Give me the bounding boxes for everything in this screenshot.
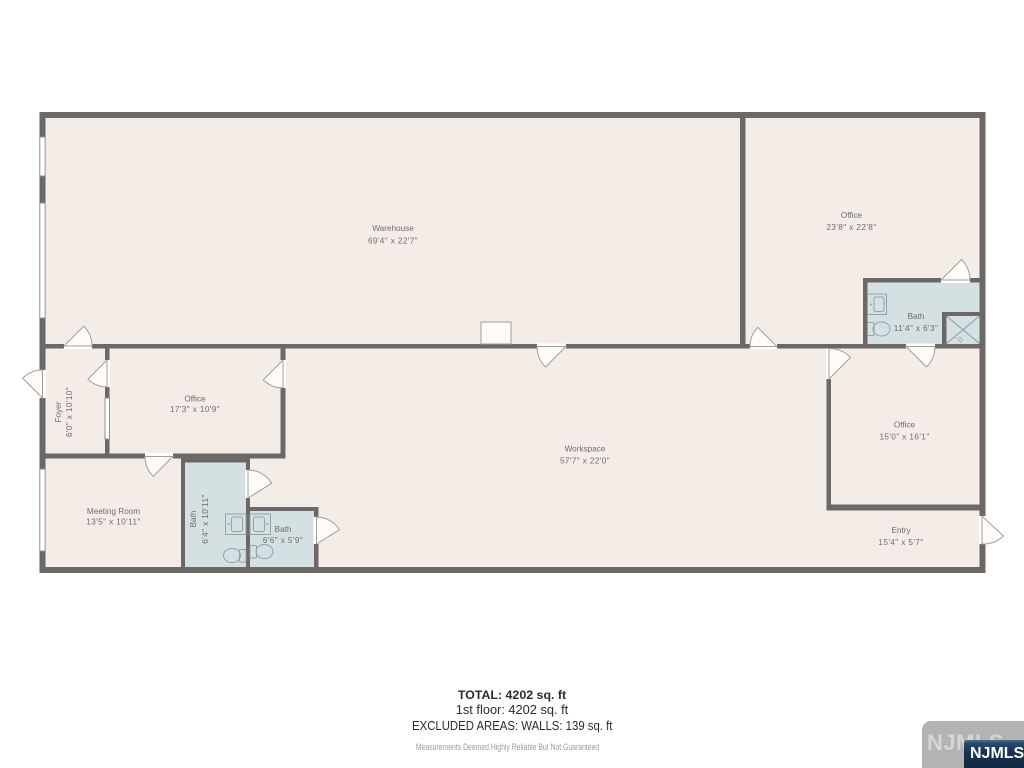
svg-text:Office: Office: [841, 211, 863, 220]
svg-text:17'3" x 10'9": 17'3" x 10'9": [170, 405, 220, 414]
svg-text:Entry: Entry: [891, 526, 911, 535]
svg-text:Workspace: Workspace: [565, 445, 606, 454]
svg-text:6'4" x 10'11": 6'4" x 10'11": [201, 494, 210, 544]
svg-text:15'0" x 16'1": 15'0" x 16'1": [879, 433, 929, 442]
svg-text:Warehouse: Warehouse: [372, 224, 414, 233]
svg-text:Bath: Bath: [275, 525, 292, 534]
svg-text:Meeting Room: Meeting Room: [87, 507, 140, 516]
svg-text:Office: Office: [894, 421, 916, 430]
svg-text:Office: Office: [184, 395, 206, 404]
svg-text:6'6" x 5'9": 6'6" x 5'9": [263, 536, 303, 545]
svg-text:Bath: Bath: [189, 510, 198, 527]
svg-text:13'5" x 10'11": 13'5" x 10'11": [86, 518, 140, 527]
svg-text:23'8" x 22'8": 23'8" x 22'8": [826, 223, 876, 232]
svg-text:11'4" x 6'3": 11'4" x 6'3": [894, 324, 939, 333]
svg-text:15'4" x 5'7": 15'4" x 5'7": [878, 538, 923, 547]
svg-text:6'0" x 10'10": 6'0" x 10'10": [65, 387, 74, 437]
svg-text:69'4" x 22'7": 69'4" x 22'7": [368, 237, 418, 246]
svg-text:Foyer: Foyer: [54, 401, 63, 422]
svg-text:Bath: Bath: [908, 312, 925, 321]
svg-text:57'7" x 22'0": 57'7" x 22'0": [560, 457, 610, 466]
